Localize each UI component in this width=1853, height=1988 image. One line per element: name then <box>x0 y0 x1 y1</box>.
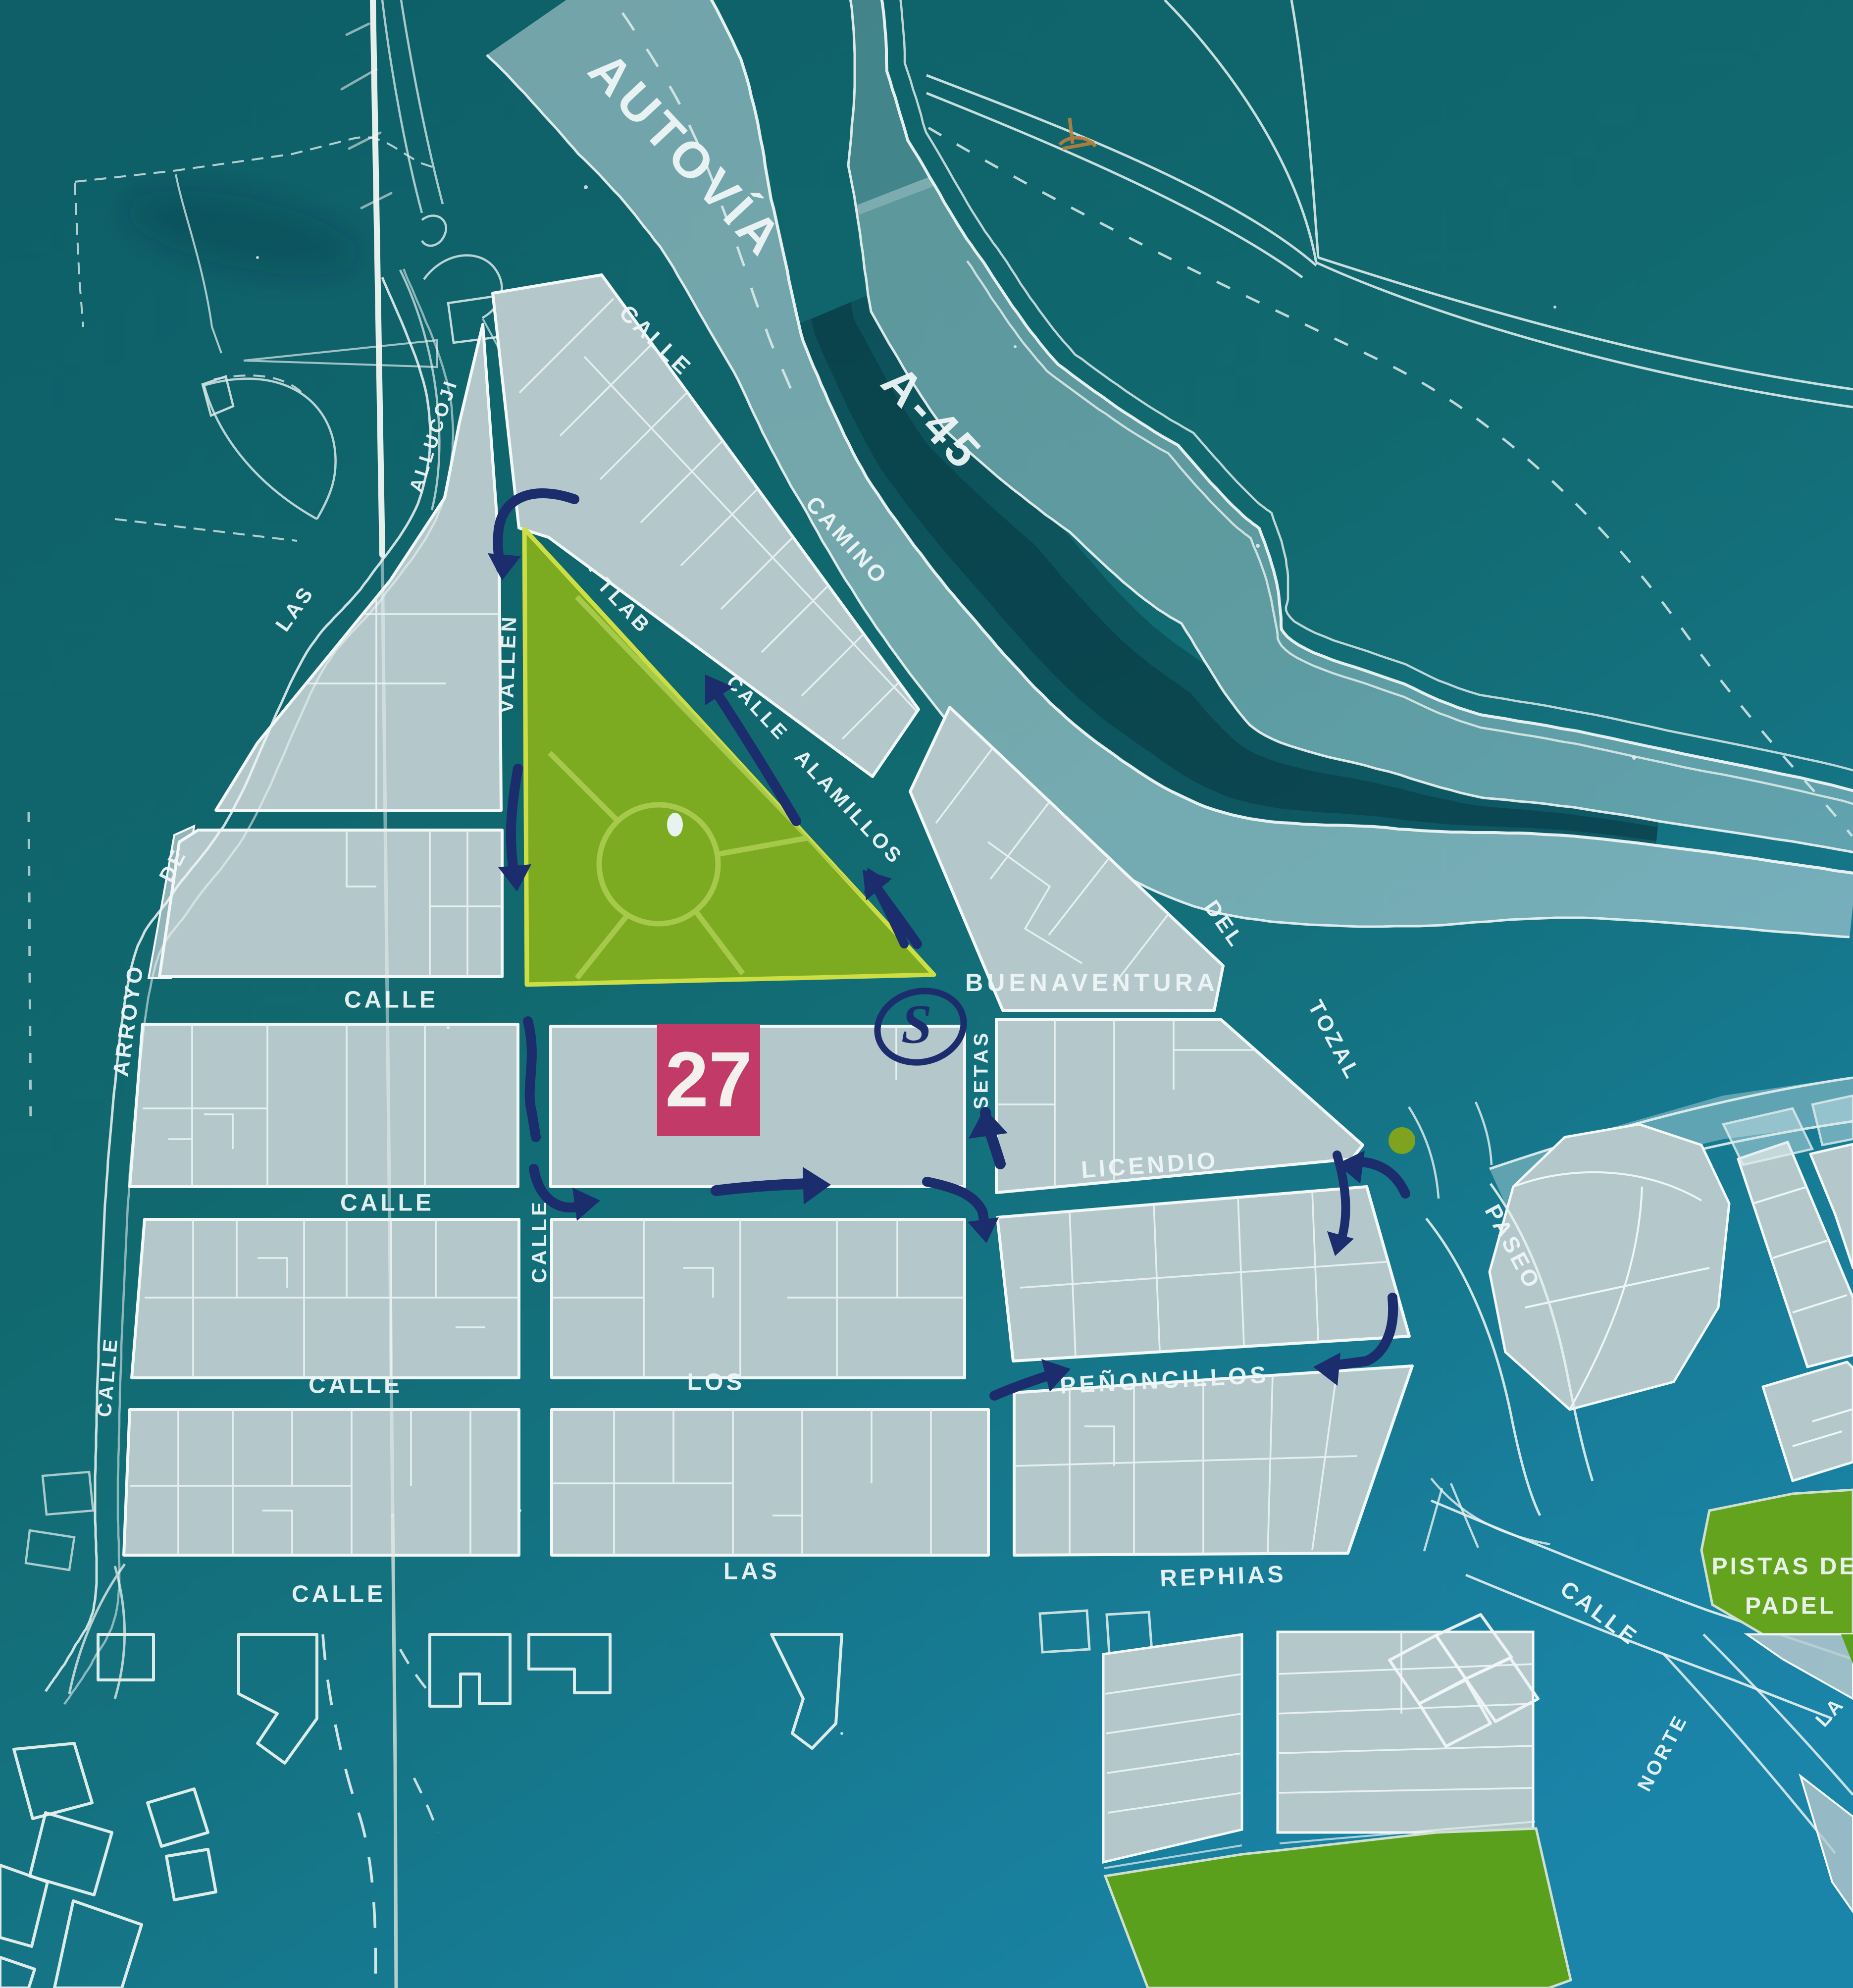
svg-text:REPHIAS: REPHIAS <box>1159 1561 1287 1592</box>
svg-text:LOS: LOS <box>687 1369 745 1396</box>
svg-text:VALLEN: VALLEN <box>494 614 521 714</box>
svg-text:SETAS: SETAS <box>971 1030 992 1109</box>
svg-text:PISTAS DE: PISTAS DE <box>1712 1554 1853 1580</box>
svg-text:CALLE: CALLE <box>527 1199 551 1283</box>
svg-text:BUENAVENTURA: BUENAVENTURA <box>965 969 1219 996</box>
svg-text:CALLE: CALLE <box>309 1372 403 1399</box>
svg-text:CALLE: CALLE <box>340 1190 434 1216</box>
svg-text:LAS: LAS <box>723 1559 780 1585</box>
svg-text:S: S <box>901 994 932 1055</box>
svg-text:CALLE: CALLE <box>344 987 438 1013</box>
svg-text:CALLE: CALLE <box>292 1581 386 1608</box>
svg-text:PADEL: PADEL <box>1745 1593 1836 1620</box>
svg-text:27: 27 <box>665 1036 752 1123</box>
